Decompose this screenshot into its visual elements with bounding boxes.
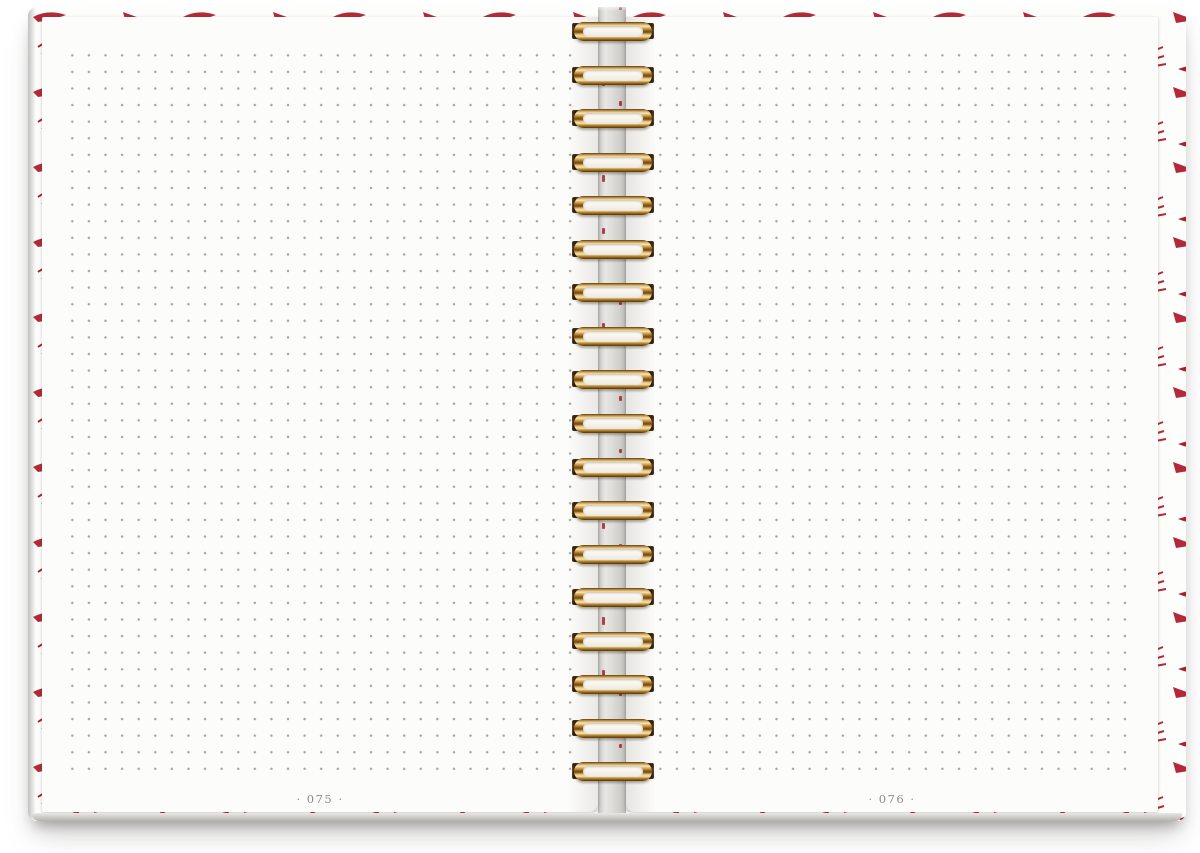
page-number-right: · 076 · [626, 792, 1158, 806]
coil-gap [583, 679, 643, 690]
coil-gap [583, 549, 643, 560]
binding-coil [572, 501, 654, 520]
coil-gap [583, 505, 643, 516]
coil-gap [583, 723, 643, 734]
coil-gap [583, 374, 643, 385]
coil-gap [583, 331, 643, 342]
coil-gap [583, 70, 643, 81]
coil-gap [583, 200, 643, 211]
cover-left-edge [28, 7, 36, 821]
binding-coil [572, 545, 654, 564]
binding-coil [572, 675, 654, 694]
binding-coil [572, 458, 654, 477]
page-left: · 075 · [42, 17, 598, 812]
binding-coil [572, 414, 654, 433]
binding-coil [572, 22, 654, 41]
binding-coil [572, 109, 654, 128]
spiral-binding [572, 7, 654, 821]
binding-coil [572, 283, 654, 302]
page-stack-edge [32, 813, 1182, 821]
binding-coil [572, 66, 654, 85]
binding-coil [572, 153, 654, 172]
binding-coil [572, 719, 654, 738]
page-right: · 076 · [626, 17, 1158, 812]
coil-gap [583, 592, 643, 603]
binding-coil [572, 327, 654, 346]
binding-coil [572, 588, 654, 607]
dot-grid-right [652, 47, 1136, 770]
coil-gap [583, 113, 643, 124]
coil-gap [583, 287, 643, 298]
coil-gap [583, 766, 643, 777]
binding-coil [572, 762, 654, 781]
binding-coil [572, 370, 654, 389]
notebook: · 075 · · 076 · [28, 7, 1186, 821]
coil-gap [583, 636, 643, 647]
notebook-photo: · 075 · · 076 · [0, 0, 1200, 853]
coil-gap [583, 462, 643, 473]
page-number-left: · 075 · [42, 792, 598, 806]
coil-gap [583, 157, 643, 168]
binding-coil [572, 632, 654, 651]
dot-grid-left [64, 47, 574, 770]
binding-coil [572, 196, 654, 215]
coil-gap [583, 26, 643, 37]
binding-coil [572, 240, 654, 259]
coil-gap [583, 244, 643, 255]
coil-gap [583, 418, 643, 429]
